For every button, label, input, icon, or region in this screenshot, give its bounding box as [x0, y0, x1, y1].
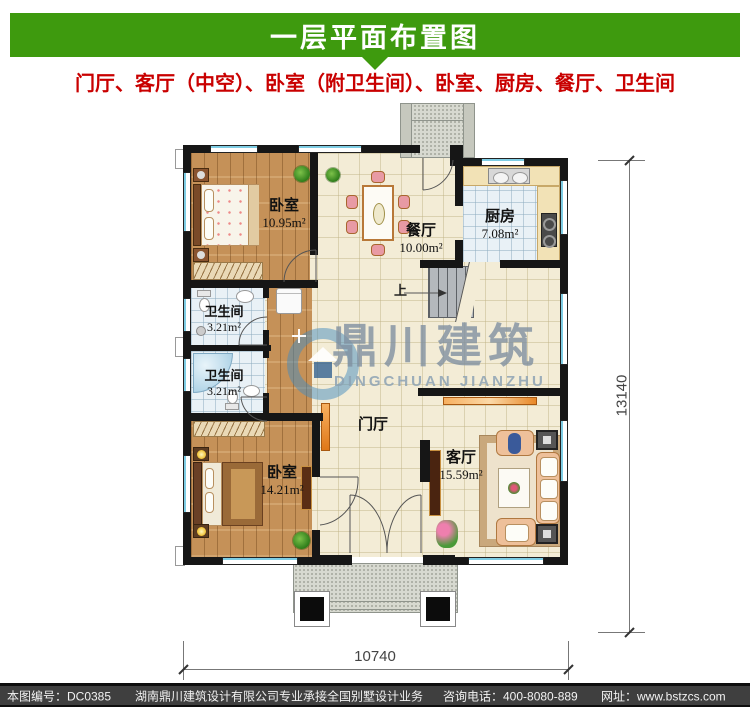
chair	[346, 220, 358, 234]
footer-bar: 本图编号：DC0385 湖南鼎川建筑设计有限公司专业承接全国别墅设计业务 咨询电…	[0, 683, 750, 707]
room-name: 客厅	[439, 449, 482, 467]
wall	[312, 530, 320, 557]
stair-up-label: 上	[394, 284, 407, 297]
page-title: 一层平面布置图	[270, 16, 480, 55]
header-bar: 一层平面布置图	[10, 13, 740, 57]
room-name: 卧室	[260, 464, 303, 482]
chair	[398, 195, 410, 209]
wall	[455, 158, 463, 206]
dimension-height: 13140	[615, 366, 630, 426]
bedroom2-label: 卧室 14.21m²	[260, 464, 303, 498]
dining-label: 餐厅 10.00m²	[399, 222, 442, 256]
company-line: 湖南鼎川建筑设计有限公司专业承接全国别墅设计业务	[135, 687, 423, 704]
back-porch-rail-right	[463, 103, 475, 158]
pillow	[204, 217, 214, 240]
nightstand-lamp	[193, 447, 209, 461]
plant	[294, 166, 310, 182]
extension-line	[183, 641, 184, 680]
room-name: 卫生间	[204, 304, 243, 320]
window	[560, 293, 568, 365]
bedroom1-label: 卧室 10.95m²	[262, 197, 305, 231]
wall	[310, 145, 318, 255]
foyer-label: 门厅	[358, 416, 388, 434]
front-step-line-2	[330, 609, 421, 610]
wall	[263, 286, 269, 298]
side-table	[536, 524, 558, 544]
window	[210, 145, 258, 153]
chair	[346, 195, 358, 209]
wall	[312, 421, 320, 477]
sofa-three-seat	[536, 452, 560, 524]
bath2-label: 卫生间 3.21m²	[204, 368, 243, 398]
sofa-single-bottom	[496, 518, 536, 546]
pillow	[205, 468, 214, 489]
front-column-left	[294, 591, 330, 627]
extension-line	[568, 641, 569, 680]
bed2-blanket	[222, 462, 263, 526]
wall	[320, 555, 352, 565]
window	[468, 557, 544, 565]
wardrobe	[193, 421, 265, 437]
room-area: 3.21m²	[204, 384, 243, 398]
wall	[183, 280, 318, 288]
extension-line	[598, 632, 645, 633]
shoe-cabinet	[321, 403, 330, 451]
phone-line: 咨询电话：400-8080-889	[443, 687, 578, 704]
room-area: 14.21m²	[260, 482, 303, 498]
wall	[500, 260, 568, 268]
plant	[293, 532, 310, 549]
front-step-line-1	[330, 601, 421, 602]
stove	[541, 213, 557, 247]
kitchen-sink	[488, 168, 530, 184]
side-table	[536, 430, 558, 450]
window	[183, 172, 191, 232]
room-name: 门厅	[358, 416, 388, 434]
coffee-table	[498, 468, 530, 508]
toilet-tank	[225, 403, 239, 410]
window	[560, 180, 568, 235]
bed1-fold	[248, 185, 259, 245]
back-porch-step-line	[412, 120, 463, 121]
wall	[263, 393, 269, 415]
window	[560, 420, 568, 482]
bed1-headboard	[193, 184, 201, 246]
sink	[236, 290, 254, 303]
room-area: 10.00m²	[399, 240, 442, 256]
wall	[455, 240, 463, 268]
room-area: 15.59m²	[439, 467, 482, 483]
window	[222, 557, 298, 565]
kitchen-label: 厨房 7.08m²	[482, 208, 519, 242]
header-pointer-triangle	[362, 57, 388, 70]
room-area: 10.95m²	[262, 215, 305, 231]
dimension-width: 10740	[340, 649, 410, 664]
living-label: 客厅 15.59m²	[439, 449, 482, 483]
flower-pot	[436, 520, 458, 548]
window	[183, 358, 191, 392]
bed2-headboard	[193, 462, 202, 526]
wall	[183, 413, 323, 421]
sink	[243, 385, 260, 397]
room-area: 7.08m²	[482, 226, 519, 242]
window	[183, 298, 191, 332]
extension-line	[598, 160, 645, 161]
nightstand	[193, 168, 209, 182]
plant	[326, 168, 340, 182]
window	[481, 158, 525, 166]
dining-table	[362, 185, 394, 241]
room-name: 卧室	[262, 197, 305, 215]
watermark-cn: 鼎川建筑	[332, 324, 540, 370]
room-name: 卫生间	[204, 368, 243, 384]
window	[298, 145, 362, 153]
wall	[420, 440, 430, 482]
wall	[423, 555, 455, 565]
room-name: 餐厅	[399, 222, 442, 240]
pillow	[204, 189, 214, 212]
chair	[371, 244, 385, 256]
chair	[371, 171, 385, 183]
room-area: 3.21m²	[204, 320, 243, 334]
sofa-single-top	[496, 430, 534, 456]
nightstand-lamp	[193, 524, 209, 538]
nightstand	[193, 248, 209, 262]
pillow	[205, 492, 214, 513]
drawing-number: 本图编号：DC0385	[7, 687, 111, 704]
washing-machine	[276, 288, 302, 314]
wardrobe	[193, 262, 263, 280]
front-column-right	[420, 591, 456, 627]
bath1-label: 卫生间 3.21m²	[204, 304, 243, 334]
wall	[263, 330, 269, 358]
room-name: 厨房	[482, 208, 519, 226]
watermark-en: DINGCHUAN JIANZHU	[334, 374, 546, 389]
floor-plan-page: 一层平面布置图 门厅、客厅（中空）、卧室（附卫生间）、卧室、厨房、餐厅、卫生间	[0, 0, 750, 707]
wall	[183, 345, 271, 351]
console-cabinet	[443, 397, 537, 405]
dimension-line-bottom	[183, 669, 569, 670]
window	[183, 455, 191, 513]
website-line: 网址：www.bstzcs.com	[601, 687, 726, 704]
toilet-tank	[197, 290, 211, 297]
room-list-subtitle: 门厅、客厅（中空）、卧室（附卫生间）、卧室、厨房、餐厅、卫生间	[0, 72, 750, 96]
